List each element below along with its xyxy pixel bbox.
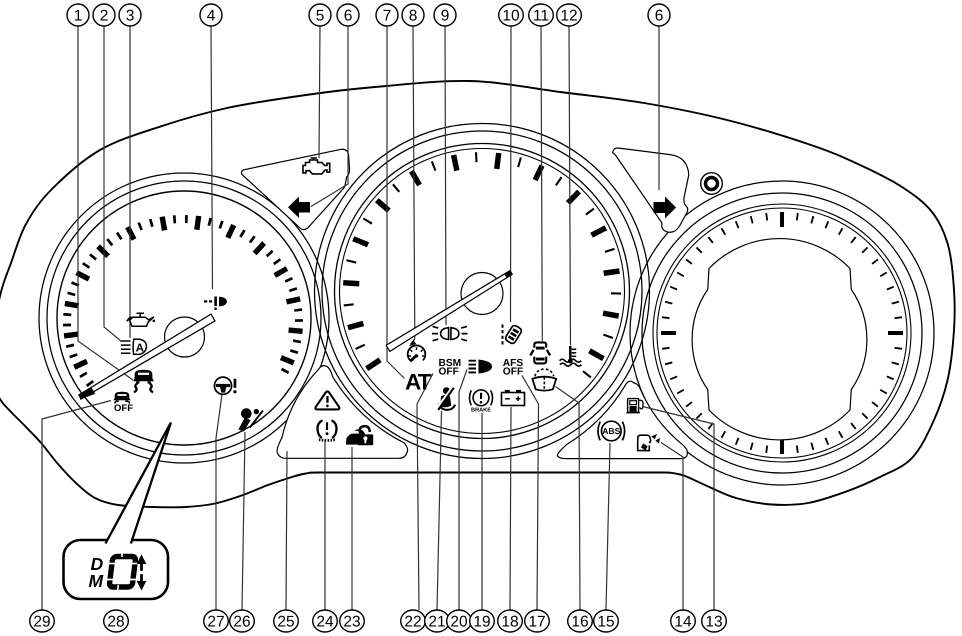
svg-text:18: 18 [501,613,518,630]
svg-text:6: 6 [344,7,353,24]
svg-text:15: 15 [597,613,614,630]
svg-text:8: 8 [409,7,418,24]
svg-text:7: 7 [383,7,392,24]
svg-text:OFF: OFF [439,367,459,378]
svg-text:14: 14 [674,613,692,630]
svg-text:13: 13 [705,613,722,630]
svg-text:21: 21 [428,613,445,630]
svg-text:19: 19 [473,613,490,630]
svg-text:A: A [136,342,144,354]
svg-text:BRAKE: BRAKE [471,407,491,413]
svg-text:29: 29 [33,613,50,630]
svg-text:OFF: OFF [114,403,133,414]
svg-text:AT: AT [405,370,432,395]
svg-text:3: 3 [126,7,135,24]
svg-text:OFF: OFF [503,367,523,378]
svg-text:ABS: ABS [602,426,620,436]
svg-text:11: 11 [533,7,549,24]
svg-text:20: 20 [450,613,468,630]
svg-text:26: 26 [233,613,250,630]
svg-text:1: 1 [74,7,83,24]
svg-text:24: 24 [316,613,334,630]
svg-text:4: 4 [207,7,216,24]
svg-text:9: 9 [441,7,450,24]
svg-text:23: 23 [343,613,360,630]
svg-text:17: 17 [528,613,545,630]
svg-text:22: 22 [404,613,421,630]
svg-text:2: 2 [100,7,109,24]
svg-text:10: 10 [502,7,520,24]
svg-text:27: 27 [207,613,224,630]
svg-text:16: 16 [571,613,588,630]
svg-text:25: 25 [277,613,294,630]
svg-text:6: 6 [655,7,664,24]
svg-text:12: 12 [560,7,577,24]
svg-text:28: 28 [107,613,124,630]
svg-text:M: M [89,571,104,591]
svg-text:5: 5 [316,7,325,24]
